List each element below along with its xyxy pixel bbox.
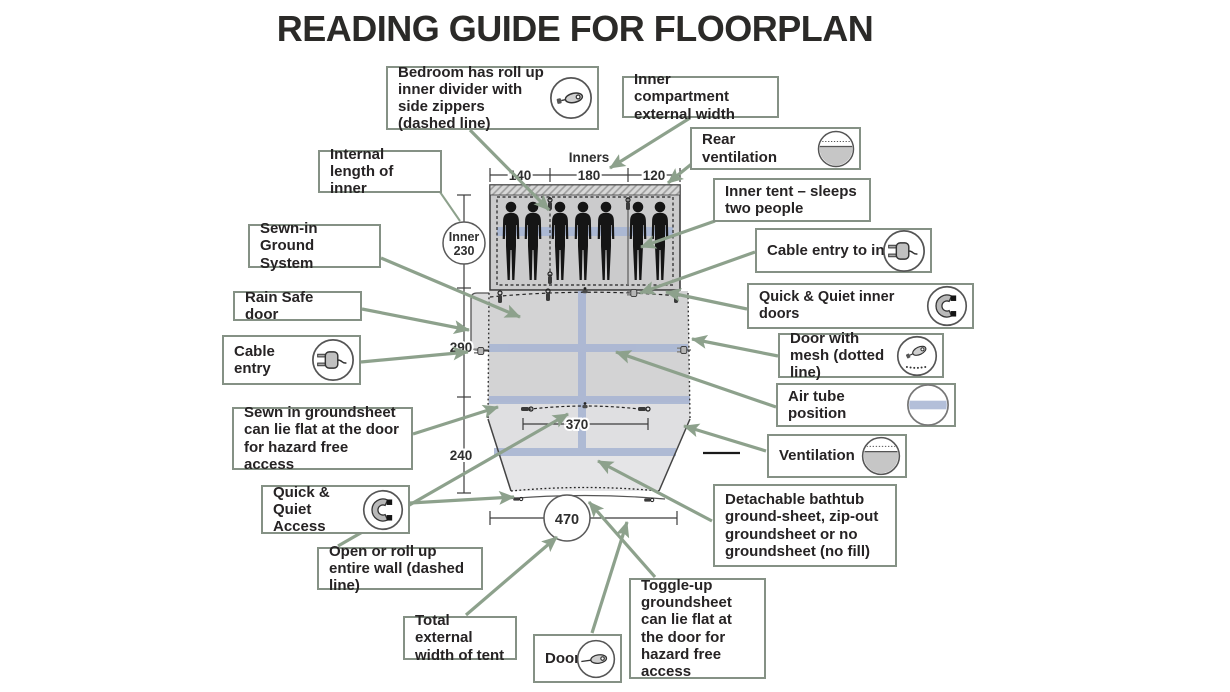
callout-open-roll-wall: Open or roll up entire wall (dashed line…: [317, 547, 483, 590]
zipper-mesh-icon: [895, 334, 939, 378]
callout-label: Quick & Quiet Access: [273, 484, 360, 535]
callout-label: Ventilation: [779, 447, 859, 464]
inner-width-120: 120: [643, 168, 666, 183]
callout-label: Bedroom has roll up inner divider with s…: [398, 64, 545, 132]
callout-label: Toggle-up groundsheet can lie flat at th…: [641, 577, 754, 680]
callout-inner-tent: Inner tent – sleeps two people: [713, 178, 871, 222]
inner-length-label: Inner: [449, 230, 480, 244]
callout-label: Detachable bathtub ground-sheet, zip-out…: [725, 491, 885, 559]
zipper-icon: [548, 75, 594, 121]
callout-label: Sewn in groundsheet can lie flat at the …: [244, 404, 401, 472]
callout-quick-quiet-inner-doors: Quick & Quiet inner doors: [747, 283, 974, 329]
front-width: 370: [566, 417, 589, 432]
callout-label: Inner compartment external width: [634, 71, 767, 122]
plug-icon: [881, 228, 927, 274]
magnet-icon: [925, 284, 969, 328]
callout-label: Door with mesh (dotted line): [790, 330, 894, 381]
callout-detachable-bathtub: Detachable bathtub ground-sheet, zip-out…: [713, 484, 897, 567]
inners-label: Inners: [569, 150, 610, 165]
callout-rear-ventilation: Rear ventilation: [690, 127, 861, 170]
callout-sewn-groundsheet: Sewn in groundsheet can lie flat at the …: [232, 407, 413, 470]
callout-label: Rain Safe door: [245, 289, 350, 323]
callout-label: Cable entry: [234, 343, 309, 377]
total-width: 470: [555, 512, 579, 528]
callout-air-tube-position: Air tube position: [776, 383, 956, 427]
zipper-icon: [575, 638, 617, 680]
callout-label: Rear ventilation: [702, 131, 813, 165]
callout-label: Total external width of tent: [415, 612, 505, 663]
ventilation-icon: [860, 435, 902, 477]
callout-quick-quiet-access: Quick & Quiet Access: [261, 485, 410, 534]
callout-door-with-mesh: Door with mesh (dotted line): [778, 333, 944, 378]
callout-bedroom-divider: Bedroom has roll up inner divider with s…: [386, 66, 599, 130]
callout-ventilation: Ventilation: [767, 434, 907, 478]
callout-door: Door: [533, 634, 622, 683]
floorplan-svg: Inners 140 180 120 Inner 230 290 240 370…: [0, 0, 1230, 692]
callout-total-external-width: Total external width of tent: [403, 616, 517, 660]
callout-inner-compartment-width: Inner compartment external width: [622, 76, 779, 118]
ventilation-icon: [816, 129, 856, 169]
callout-label: Sewn-in Ground System: [260, 220, 369, 271]
callout-sewn-in-ground-system: Sewn-in Ground System: [248, 224, 381, 268]
front-length: 240: [450, 448, 473, 463]
callout-label: Open or roll up entire wall (dashed line…: [329, 543, 471, 594]
callout-label: Door: [545, 650, 576, 667]
callout-internal-length: Internal length of inner: [318, 150, 442, 193]
plug-icon: [310, 337, 356, 383]
callout-cable-entry: Cable entry: [222, 335, 361, 385]
inner-width-180: 180: [578, 168, 601, 183]
callout-label: Air tube position: [788, 388, 904, 422]
inner-length-value: 230: [454, 244, 475, 258]
callout-label: Internal length of inner: [330, 146, 430, 197]
tent-floorplan: [471, 185, 691, 502]
callout-rain-safe-door: Rain Safe door: [233, 291, 362, 321]
reading-guide-diagram: READING GUIDE FOR FLOORPLAN: [0, 0, 1230, 692]
magnet-icon: [361, 488, 405, 532]
callout-toggle-up-groundsheet: Toggle-up groundsheet can lie flat at th…: [629, 578, 766, 679]
callout-cable-entry-inner: Cable entry to inn: [755, 228, 932, 273]
air-tube-icon: [905, 382, 951, 428]
callout-label: Quick & Quiet inner doors: [759, 289, 924, 322]
callout-label: Inner tent – sleeps two people: [725, 183, 859, 217]
